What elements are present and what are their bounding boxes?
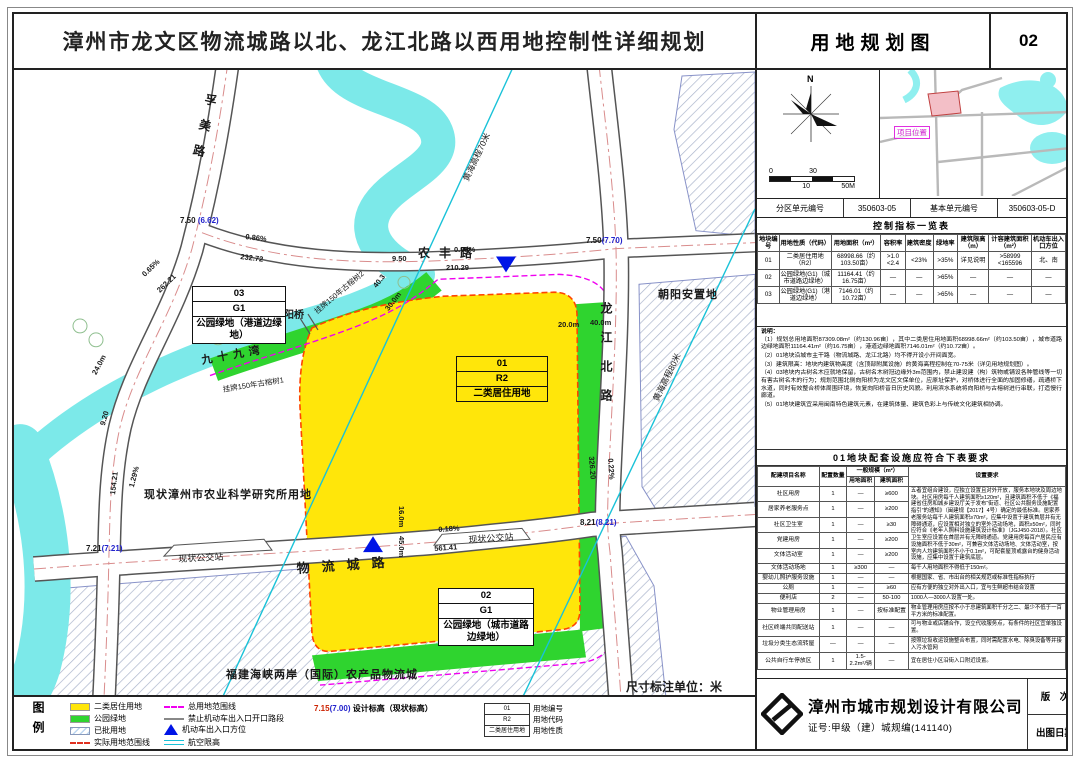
control-row-03: 03公园绿地(G1)（港道边绿地）7146.01（约10.72亩）——>65%—… [758,286,1066,303]
legend-item-approved-land: 已批用地 [70,725,126,736]
cell: — [988,269,1031,286]
col-header: 配建项目名称 [758,467,820,487]
note-5: （5）01地块建筑宜采用闽南特色建筑元素，在建筑体量、建筑色彩上与传统文化建筑相… [761,402,1062,410]
requirement-cell: 每千人用地面积不得低于150m²。 [908,564,1065,574]
elevation-sw: 7.21(7.21) [86,544,122,553]
dim-018: 0.18% [438,524,460,534]
cell: — [881,286,906,303]
version-row: 版 次 1 [1028,679,1068,715]
col-header: 计容建筑面积（m²） [988,235,1031,252]
cell: — [875,636,909,653]
facility-table-section: 配建项目名称 配置数量 一般规模（m²） 设置要求 用地面积 建筑面积 社区用房… [757,466,1066,679]
legend-item-park-green: 公园绿地 [70,713,126,724]
cell: 公共自行车停放区 [758,653,820,670]
dim-450: 45.0m [397,536,406,557]
facility-row: 社区终端共同配送站1——可与物业或店铺合作，设立代收服务点，有条件的社区宜单独设… [758,620,1066,637]
legend-label: 禁止机动车出入口开口路段 [188,713,284,724]
requirement-cell: 根据国家、省、市出台的相关规范或标准性指标执行 [908,574,1065,584]
cell: ≥300 [847,564,875,574]
dim-400: 40.0m [590,318,611,327]
legend-label: 航空限高 [188,737,220,748]
dim-21029: 210.29 [446,263,469,272]
block-02-type-code: G1 [439,604,533,619]
cell: — [847,502,875,517]
plan-sheet-page: 漳州市龙文区物流城路以北、龙江北路以西用地控制性详细规划 用地规划图 02 [0,0,1080,763]
block-01-type-name: 二类居住用地 [457,387,547,401]
facility-row: 公厕1—≥60应有方便的独立对外出入口，宜与生鲜超市结合设置 [758,584,1066,594]
legend-item-no-entrance-segment: 禁止机动车出入口开口路段 [164,713,284,724]
cell: 1 [819,486,847,501]
cell: 公园绿地(G1)（城市道路边绿地） [779,269,831,286]
facility-row: 垃圾分类生态流转屋———按照垃圾收运设施整合布置，同时需配置水电、除臭设备等并接… [758,636,1066,653]
scale-tick: 30 [809,168,817,175]
cell: — [847,594,875,604]
district-unit-value: 350603-05 [844,199,911,217]
cell: 2 [819,594,847,604]
plan-map: 孚美路 农丰路 龙江北路 物流城路 九十九湾 向阳桥 挂牌150年古榕树1 挂牌… [14,70,755,695]
cell: — [958,286,989,303]
block-box-02: 02 G1 公园绿地（城市道路边绿地） [438,588,534,646]
cell: 1 [819,533,847,548]
aviation-limit-swatch [164,740,184,745]
company-cell: 漳州市城市规划设计有限公司 证号:甲级（建）城规编(141140) [757,679,1028,749]
elevation-sample-label: 设计标高（现状标高） [353,704,433,713]
col-header: 用地面积（m²） [831,235,880,252]
cell: >58999 <165596 [988,252,1031,269]
cell: 文体活动室 [758,548,820,564]
elevation-nw: 7.50 (6.62) [180,216,219,225]
scale-bar-segments [769,176,855,182]
facility-table-title: 01地块配套设施应符合下表要求 [757,450,1066,466]
cell: 党建用房 [758,533,820,548]
dim-160: 16.0m [397,506,406,527]
dim-095: 0.95% [454,245,475,254]
facility-row: 便利店2—50-1001000人—3000人设置一处。 [758,594,1066,604]
control-row-01: 01二类居住用地（R2）68998.66（约103.50亩）>1.0 <2.4<… [758,252,1066,269]
notes-section: 说明： （1）规划总用地面积87309.08m²（约130.96亩），其中二类居… [757,327,1066,450]
sheet-name: 用地规划图 [757,14,991,68]
cell: >65% [933,269,958,286]
block-key-code: 01 [484,703,530,714]
col-header: 配置数量 [819,467,847,487]
cell: ≥60 [875,584,909,594]
actual-boundary-swatch [70,742,90,744]
cell: 社区终端共同配送站 [758,620,820,637]
basic-unit-label: 基本单元编号 [911,199,998,217]
basic-unit-value: 350603-05-D [998,199,1066,217]
cell: 社区用房 [758,486,820,501]
block-01-code: 01 [457,357,547,372]
cell: 二类居住用地（R2） [779,252,831,269]
dim-56141: 561.41 [434,542,458,553]
note-2: （2）01地块沿城市主干路（物流城路、龙江北路）均不得开设小开间面宽。 [761,353,1062,361]
cell: — [847,603,875,620]
no-entrance-swatch [164,718,184,720]
cell: — [847,548,875,564]
cell: — [847,620,875,637]
legend-item-site-boundary: 总用地范围线 [164,701,236,712]
block-box-01: 01 R2 二类居住用地 [456,356,548,402]
cell: 社区卫生室 [758,517,820,532]
col-header: 一般规模（m²） [847,467,909,477]
date-row: 出图日期 2020.09 [1028,715,1068,750]
facility-row: 文体活动场地1≥300—每千人用地面积不得低于150m²。 [758,564,1066,574]
site-boundary-swatch [164,706,184,708]
cell: — [875,653,909,670]
facility-row: 社区用房1—≥600五者宜组合建设，应独立设置且对外开放，服务本地块及周边地块。… [758,486,1066,501]
legend-item-vehicle-entrance: 机动车出入口方位 [164,724,246,735]
note-3: （3）建筑限高：地块内建筑物高度（含顶部附属设施）的黄海高程控制在70-75米（… [761,362,1062,370]
cell: 03 [758,286,780,303]
cell: ≥200 [875,502,909,517]
cell: >65% [933,286,958,303]
cell: ≥200 [875,533,909,548]
cell: 02 [758,269,780,286]
facility-row: 物业管理用房1—按标准配置物业管理用房应按不小于总建筑面积千分之二、最少不低于一… [758,603,1066,620]
cell: — [819,636,847,653]
col-header: 建筑限高（m） [958,235,989,252]
cell: — [847,574,875,584]
requirement-cell: 宜在居住小区沿街入口附近设置。 [908,653,1065,670]
dim-022: 0.22% [606,458,616,480]
date-label: 出图日期 [1028,715,1068,750]
cell: 便利店 [758,594,820,604]
park-green-swatch [70,715,90,723]
cell: — [988,286,1031,303]
requirement-cell: 应有方便的独立对外出入口，宜与生鲜超市结合设置 [908,584,1065,594]
elevation-se: 8.21(8.21) [580,518,616,527]
version-date-cell: 版 次 1 出图日期 2020.09 [1028,679,1068,749]
legend-label: 机动车出入口方位 [182,724,246,735]
cell: 1 [819,584,847,594]
legend-label: 二类居住用地 [94,701,142,712]
col-header: 建筑面积 [875,476,909,486]
legend-item-residential: 二类居住用地 [70,701,142,712]
block-key-code: 二类居住用地 [484,725,530,737]
block-key-row: 二类居住用地用地性质 [484,725,563,736]
legend-item-aviation-limit: 航空限高 [164,737,220,748]
cell: 详见说明 [958,252,989,269]
cell: — [847,533,875,548]
control-table-title: 控制指标一览表 [757,218,1066,234]
entrance-triangle-swatch [164,724,178,735]
legend-item-actual-boundary: 实际用地范围线 [70,737,150,748]
block-03-code: 03 [193,287,285,302]
scale-tick: 50M [841,183,855,190]
title-bar: 漳州市龙文区物流城路以北、龙江北路以西用地控制性详细规划 用地规划图 02 [14,14,1066,70]
block-01-type-code: R2 [457,372,547,387]
chaoyang-label: 朝阳安置地 [658,286,718,302]
block-key-row: 01用地编号 [484,703,563,714]
compass-cell: N 030 1050M [757,70,880,198]
cell: ≥30 [875,517,909,532]
cell: — [958,269,989,286]
block-key-code: R2 [484,714,530,725]
cell: 北、南 [1032,252,1066,269]
cell: 1 [819,517,847,532]
cell: ≥200 [875,548,909,564]
cell: 公厕 [758,584,820,594]
cell: — [847,517,875,532]
cell: — [1032,286,1066,303]
control-table-header-row: 地块编号 用地性质（代码） 用地面积（m²） 容积率 建筑密度 绿地率 建筑限高… [758,235,1066,252]
scale-bar: 030 1050M [769,168,855,190]
cell: 婴幼儿照护服务设施 [758,574,820,584]
col-header: 用地性质（代码） [779,235,831,252]
map-canvas [14,70,755,695]
col-header: 绿地率 [933,235,958,252]
locator-section: N 030 1050M [757,70,1066,199]
company-logo-icon [761,693,803,735]
sheet-inner-frame: 漳州市龙文区物流城路以北、龙江北路以西用地控制性详细规划 用地规划图 02 [12,12,1068,751]
block-key-row: R2用地代码 [484,714,563,725]
cell: — [905,286,933,303]
cell: >1.0 <2.4 [881,252,906,269]
dim-200: 20.0m [558,320,579,329]
legend-title: 图例 [30,701,47,741]
facility-header-row: 配建项目名称 配置数量 一般规模（m²） 设置要求 [758,467,1066,477]
cell: — [875,564,909,574]
col-header: 设置要求 [908,467,1065,487]
legend-block-key: 01用地编号 R2用地代码 二类居住用地用地性质 [484,703,563,736]
version-label: 版 次 [1028,679,1068,714]
facility-requirements-table: 配建项目名称 配置数量 一般规模（m²） 设置要求 用地面积 建筑面积 社区用房… [757,466,1066,670]
requirement-cell: 物业管理用房应按不小于总建筑面积千分之二、最少不低于一百平方米的标准配置。 [908,603,1065,620]
logistics-city-label: 福建海峡两岸（国际）农产品物流城 [226,666,418,682]
approved-land-swatch [70,727,90,735]
notes-label: 说明： [761,329,779,335]
residential-swatch [70,703,90,711]
legend: 图例 二类居住用地 公园绿地 已批用地 实际用地范围线 总用地范围线 禁止机动车… [14,695,755,749]
col-header: 容积率 [881,235,906,252]
block-box-03: 03 G1 公园绿地（港道边绿地） [192,286,286,344]
dimension-unit-note: 尺寸标注单位：米 [626,678,722,695]
col-header: 建筑密度 [905,235,933,252]
design-elevation-sample: 7.15 [314,704,330,713]
control-row-02: 02公园绿地(G1)（城市道路边绿地）11164.41（约16.75亩）——>6… [758,269,1066,286]
cell: 68998.66（约103.50亩） [831,252,880,269]
cell: 50-100 [875,594,909,604]
cell: 7146.01（约10.72亩） [831,286,880,303]
requirement-cell: 按照垃圾收运设施整合布置，同时需配置水电、除臭设备等并接入污水管网 [908,636,1065,653]
cell: 1 [819,564,847,574]
cell: ≥600 [875,486,909,501]
cell: 01 [758,252,780,269]
scale-tick: 10 [802,183,810,190]
block-03-type-code: G1 [193,302,285,317]
control-table-section: 地块编号 用地性质（代码） 用地面积（m²） 容积率 建筑密度 绿地率 建筑限高… [757,234,1066,327]
block-key-label: 用地代码 [533,714,563,725]
sheet-number: 02 [991,14,1066,68]
requirement-cell: 1000人—3000人设置一处。 [908,594,1065,604]
title-block: 漳州市城市规划设计有限公司 证号:甲级（建）城规编(141140) 版 次 1 … [757,679,1066,749]
block-02-code: 02 [439,589,533,604]
bus-stop-label-west: 现状公交站 [178,550,224,565]
requirement-cell: 可与物业或店铺合作，设立代收服务点，有条件的社区宜单独设置。 [908,620,1065,637]
cell: 1 [819,502,847,517]
col-header: 地块编号 [758,235,780,252]
cell: 11164.41（约16.75亩） [831,269,880,286]
cell: 文体活动场地 [758,564,820,574]
cell: 1 [819,574,847,584]
company-cert: 证号:甲级（建）城规编(141140) [808,720,1023,734]
cell: — [881,269,906,286]
cell: — [1032,269,1066,286]
block-03-type-name: 公园绿地（港道边绿地） [193,317,285,343]
cell: 按标准配置 [875,603,909,620]
scale-bottom-ticks: 1050M [769,183,855,190]
elevation-ne: 7.50(7.70) [586,236,622,245]
cell: 垃圾分类生态流转屋 [758,636,820,653]
cell: 1 [819,620,847,637]
dim-32620: 326.20 [587,456,598,480]
legend-label: 已批用地 [94,725,126,736]
facility-row: 公共自行车停放区11.5-2.2m²/辆—宜在居住小区沿街入口附近设置。 [758,653,1066,670]
cell: 1 [819,653,847,670]
info-panel: N 030 1050M [757,70,1066,749]
sheet-outer-frame: 漳州市龙文区物流城路以北、龙江北路以西用地控制性详细规划 用地规划图 02 [7,7,1073,756]
legend-label: 公园绿地 [94,713,126,724]
map-column: 孚美路 农丰路 龙江北路 物流城路 九十九湾 向阳桥 挂牌150年古榕树1 挂牌… [14,70,757,749]
legend-label: 实际用地范围线 [94,737,150,748]
control-indicators-table: 地块编号 用地性质（代码） 用地面积（m²） 容积率 建筑密度 绿地率 建筑限高… [757,234,1066,304]
merged-requirement-cell: 五者宜组合建设，应独立设置且对外开放，服务本地块及周边地块。社区用房每千人建筑面… [908,486,1065,563]
cell: — [847,636,875,653]
cell: 1 [819,548,847,564]
cell: — [875,574,909,584]
cell: 1.5-2.2m²/辆 [847,653,875,670]
unit-number-row: 分区单元编号 350603-05 基本单元编号 350603-05-D [757,199,1066,218]
existing-elevation-sample: (7.00) [330,704,351,713]
dim-950: 9.50 [392,254,407,263]
scale-tick: 0 [769,168,773,175]
north-label: N [807,74,814,84]
legend-label: 总用地范围线 [188,701,236,712]
note-4: （4）03地块内古树名木应就地保留，古树名木树冠边缘外3m范围内，禁止建设建（构… [761,370,1062,401]
cell: >35% [933,252,958,269]
cell: 居家养老服务点 [758,502,820,517]
cell: — [905,269,933,286]
block-key-label: 用地性质 [533,725,563,736]
note-1: （1）规划总用地面积87309.08m²（约130.96亩），其中二类居住用地面… [761,337,1062,352]
plan-title: 漳州市龙文区物流城路以北、龙江北路以西用地控制性详细规划 [14,14,757,68]
cell: 物业管理用房 [758,603,820,620]
cell: — [847,584,875,594]
facility-row: 婴幼儿照护服务设施1——根据国家、省、市出台的相关规范或标准性指标执行 [758,574,1066,584]
project-location-label: 项目位置 [894,126,930,139]
cell: 1 [819,603,847,620]
company-name: 漳州市城市规划设计有限公司 [808,695,1023,717]
sheet-body: 孚美路 农丰路 龙江北路 物流城路 九十九湾 向阳桥 挂牌150年古榕树1 挂牌… [14,70,1066,749]
col-header: 用地面积 [847,476,875,486]
compass-icon [781,84,841,144]
cell: 公园绿地(G1)（港道边绿地） [779,286,831,303]
locator-map-cell: 项目位置 [880,70,1066,198]
cell: — [847,486,875,501]
col-header: 机动车出入口方位 [1032,235,1066,252]
block-02-type-name: 公园绿地（城市道路边绿地） [439,619,533,645]
cell: <23% [905,252,933,269]
block-key-label: 用地编号 [533,703,563,714]
district-unit-label: 分区单元编号 [757,199,844,217]
cell: — [875,620,909,637]
scale-top-ticks: 030 [769,168,855,175]
legend-elevation-sample: 7.15(7.00) 设计标高（现状标高） [314,703,433,714]
agri-institute-label: 现状漳州市农业科学研究所用地 [144,486,312,502]
